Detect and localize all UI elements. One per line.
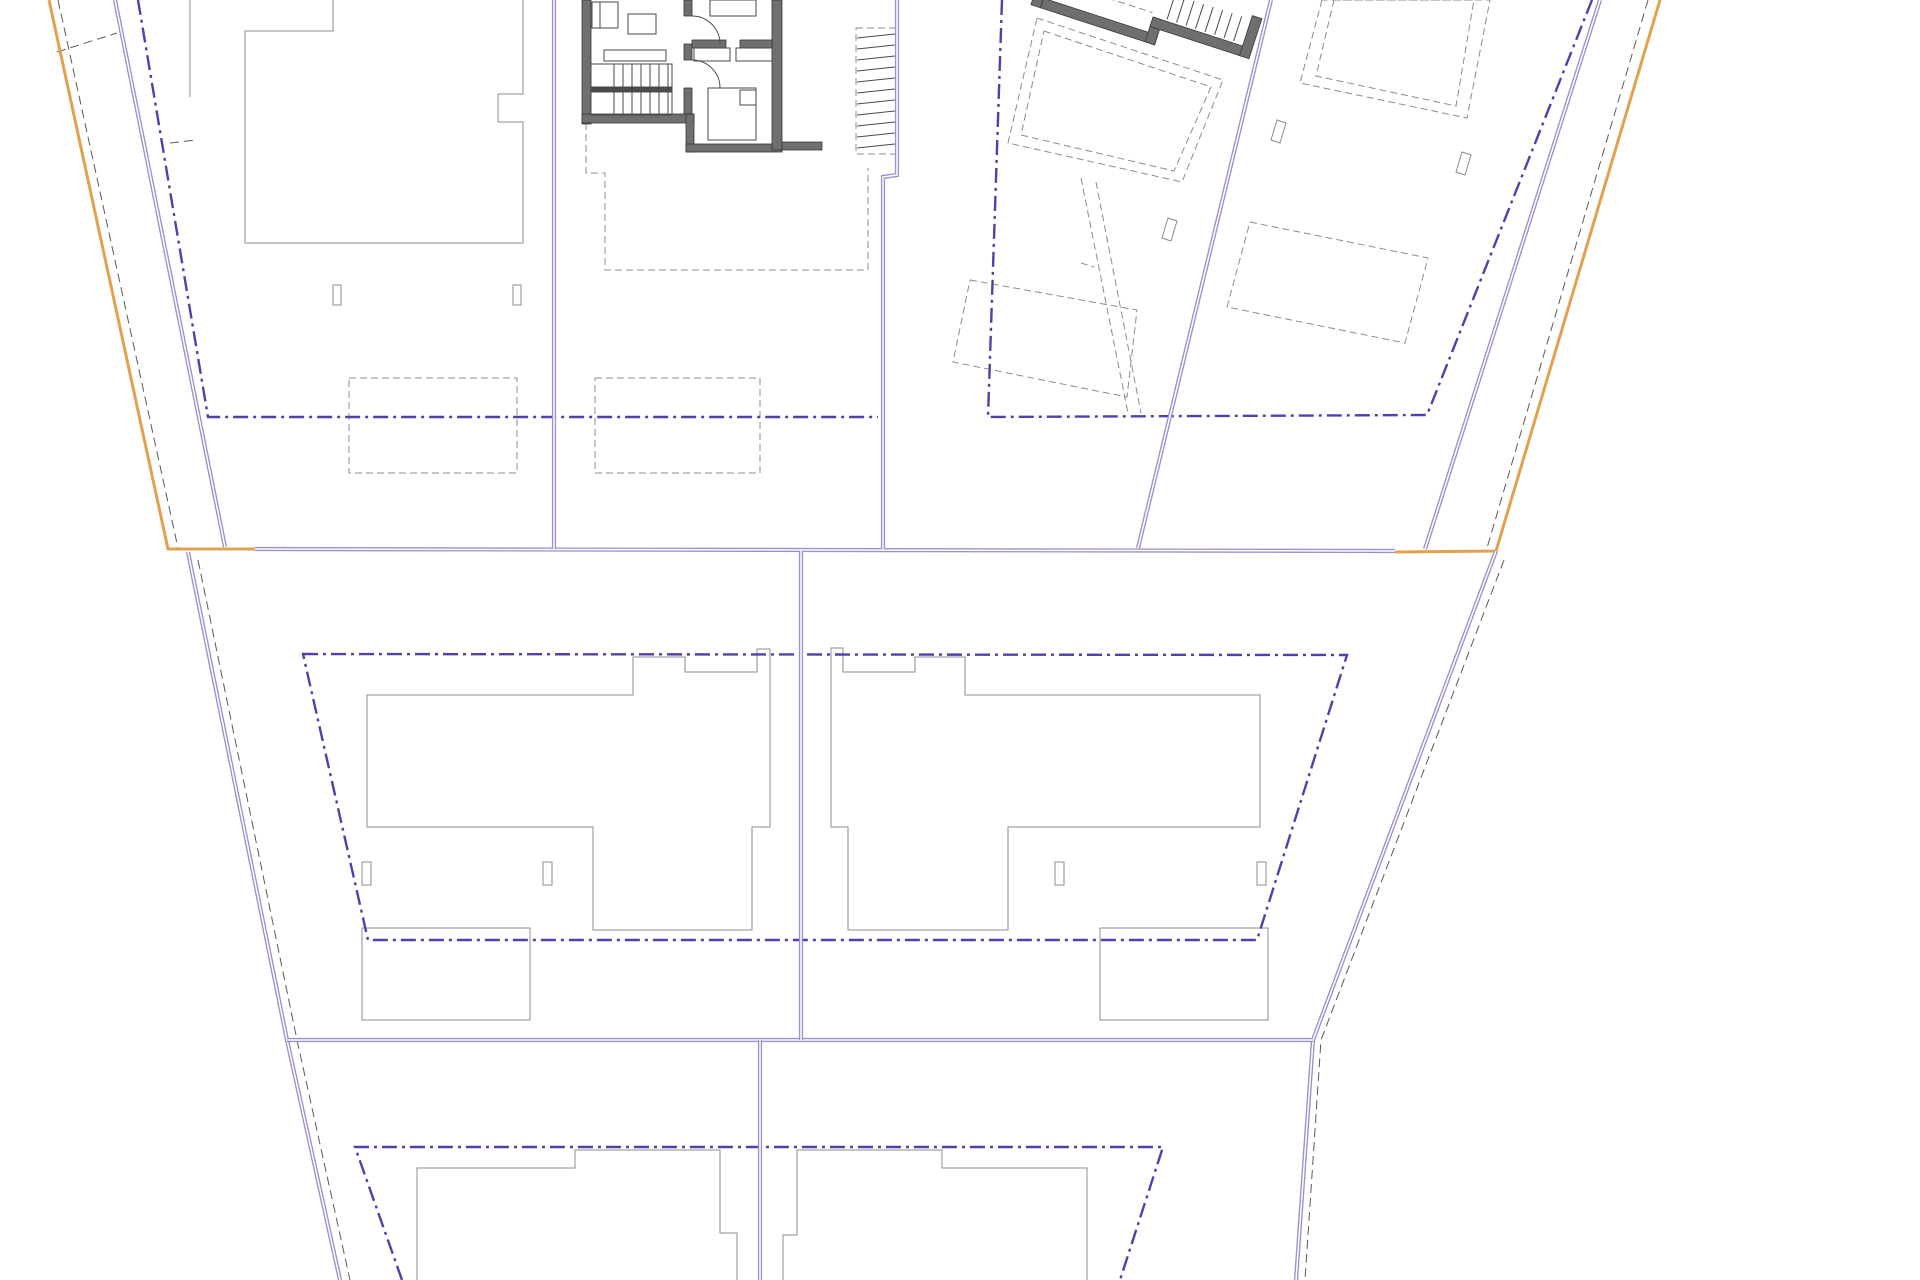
orange-boundary-left — [49, 0, 255, 549]
building2-footprint-outer — [1008, 18, 1223, 182]
building2-stair-treads — [1205, 7, 1213, 32]
house4-outline-inner — [1316, 0, 1474, 106]
bed — [710, 0, 756, 16]
house6-outline — [831, 648, 1260, 930]
external-stair-treads — [857, 45, 895, 49]
post-tilted — [1271, 120, 1286, 143]
building2-stair-treads — [1196, 4, 1204, 29]
house7-outline — [417, 1150, 737, 1280]
pillow — [740, 90, 756, 105]
sofa — [592, 2, 618, 28]
setback-plots-3-4 — [988, 0, 1592, 417]
external-stair-treads — [857, 56, 895, 60]
house1-outline — [245, 0, 523, 243]
bed — [708, 88, 756, 140]
building2-stair-treads — [1177, 0, 1185, 23]
pad-tilted — [953, 280, 1137, 397]
external-stair-treads — [857, 34, 895, 38]
inner-boundary-right-core — [1425, 0, 1600, 549]
plot-boundaries-purple — [115, 0, 1600, 1280]
garage — [1100, 928, 1268, 1020]
bench — [604, 50, 666, 61]
house5-outline — [367, 649, 770, 930]
wall — [686, 144, 782, 152]
external-stair-treads — [857, 111, 895, 115]
wardrobe — [694, 48, 730, 61]
door-arc — [692, 60, 720, 88]
building2-footprint-inner — [1021, 31, 1211, 171]
wall — [684, 44, 692, 60]
boundary-lower-right-core — [1296, 551, 1496, 1280]
external-stair-treads — [857, 89, 895, 93]
post-tilted — [1456, 152, 1471, 175]
setback-middle-band — [303, 654, 1347, 940]
wall — [1040, 0, 1157, 45]
inner-boundary-left-core — [115, 0, 225, 547]
wall — [684, 88, 692, 114]
post — [333, 285, 341, 305]
plot-divider-3-core — [1138, 0, 1271, 548]
thin-gray-outlines — [190, 0, 1471, 1280]
boundary-companion — [58, 0, 178, 548]
post — [543, 862, 552, 885]
wall — [582, 0, 591, 124]
stair-rail — [591, 87, 672, 92]
building2-stair-treads — [1234, 16, 1242, 41]
wall — [1150, 17, 1252, 59]
parking-pad — [349, 378, 517, 473]
external-stair-treads — [857, 122, 895, 126]
parking-pad — [595, 378, 760, 473]
walkway-edge — [1096, 182, 1141, 413]
setback-dashdot-lines — [138, 0, 1592, 1280]
building1-walls — [582, 0, 1262, 152]
boundary-companion — [198, 560, 350, 1280]
site-boundary-orange — [49, 0, 1660, 552]
site-plan-canvas — [0, 0, 1920, 1280]
site-plan-page — [0, 0, 1920, 1280]
pad-tilted — [1227, 222, 1428, 343]
orange-boundary-right — [1395, 0, 1660, 552]
walkway-edge — [1081, 178, 1128, 413]
boundary-companion — [1305, 560, 1504, 1280]
external-stair-treads — [857, 100, 895, 104]
building2-stair-treads — [1215, 10, 1223, 35]
external-stair-treads — [857, 67, 895, 71]
post — [1055, 862, 1064, 885]
building2-stair-treads — [1167, 0, 1175, 19]
house8-outline — [783, 1150, 1087, 1280]
wall — [772, 0, 782, 150]
table — [628, 14, 656, 34]
wall — [740, 40, 772, 48]
boundary-lower-right — [1296, 551, 1496, 1280]
post — [513, 285, 521, 305]
garage — [362, 928, 530, 1020]
wall — [692, 40, 726, 48]
building2-stair-treads — [1224, 13, 1232, 38]
dashed-gray-outlines — [349, 0, 1490, 473]
post-tilted — [1162, 218, 1177, 241]
survey-tick — [170, 140, 196, 143]
setback-plots-1-2 — [138, 0, 878, 417]
external-stair-treads — [857, 144, 895, 148]
plot-divider-2 — [883, 0, 897, 549]
wardrobe — [736, 48, 772, 61]
wall — [782, 142, 822, 150]
wall — [684, 0, 692, 16]
post — [1257, 862, 1266, 885]
house4-outline-outer — [1300, 0, 1490, 118]
building2-stair-treads — [1186, 1, 1194, 26]
walkway-step — [1081, 263, 1094, 267]
external-stair-treads — [857, 133, 895, 137]
external-stair-treads — [857, 78, 895, 82]
post — [362, 862, 371, 885]
